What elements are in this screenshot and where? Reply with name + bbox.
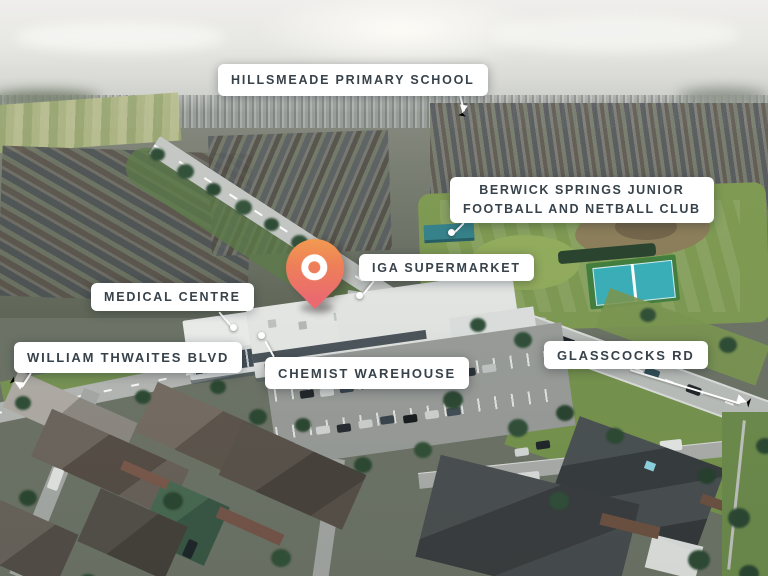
label-text-line1: BERWICK SPRINGS JUNIOR <box>479 181 684 200</box>
label-text: HILLSMEADE PRIMARY SCHOOL <box>231 73 475 87</box>
label-chemist-warehouse: CHEMIST WAREHOUSE <box>265 357 469 389</box>
label-william-thwaites-blvd: WILLIAM THWAITES BLVD <box>14 342 242 373</box>
label-medical-centre: MEDICAL CENTRE <box>91 283 254 311</box>
aerial-site-map: HILLSMEADE PRIMARY SCHOOL BERWICK SPRING… <box>0 0 768 576</box>
label-text: IGA SUPERMARKET <box>372 261 521 275</box>
leader-dot-berwick <box>448 229 455 236</box>
label-hillsmeade-primary-school: HILLSMEADE PRIMARY SCHOOL <box>218 64 488 96</box>
label-text-line2: FOOTBALL AND NETBALL CLUB <box>463 200 701 219</box>
label-glasscocks-rd: GLASSCOCKS RD <box>544 341 708 369</box>
map-pin-ring <box>296 249 333 286</box>
label-text: MEDICAL CENTRE <box>104 290 241 304</box>
leader-dot-iga <box>356 292 363 299</box>
label-text: GLASSCOCKS RD <box>557 348 695 363</box>
leader-dot-chemist <box>258 332 265 339</box>
label-berwick-springs-club: BERWICK SPRINGS JUNIOR FOOTBALL AND NETB… <box>450 177 714 223</box>
leader-dot-medical <box>230 324 237 331</box>
label-iga-supermarket: IGA SUPERMARKET <box>359 254 534 281</box>
label-text: CHEMIST WAREHOUSE <box>278 366 456 381</box>
label-text: WILLIAM THWAITES BLVD <box>27 350 229 365</box>
